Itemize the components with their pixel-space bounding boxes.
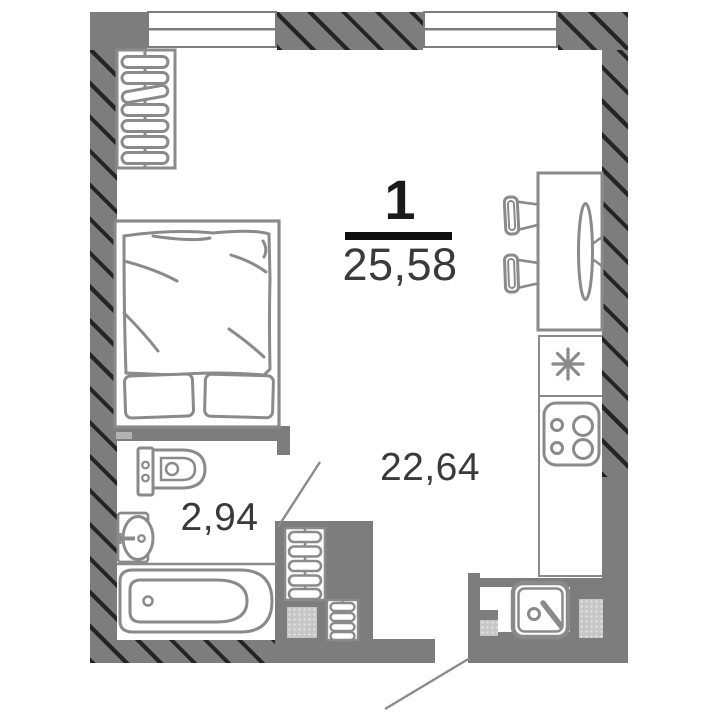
- wall-bottom-left: [90, 640, 278, 663]
- dining-table-icon: [503, 171, 604, 334]
- kitchen-sink-icon: [506, 576, 574, 642]
- total-area-label: 25,58: [330, 241, 470, 289]
- duct-coil-icon: [283, 526, 327, 602]
- main-area-label: 22,64: [370, 446, 490, 490]
- refrigerator-icon: [551, 347, 585, 381]
- wall-top-right: [558, 12, 628, 50]
- chair-icon: [504, 196, 540, 235]
- floor-plan: 1 25,58 22,64 2,94: [0, 0, 720, 720]
- wall-vent-mark: [116, 432, 132, 439]
- bathroom-door-jamb: [277, 440, 290, 455]
- window-right: [423, 11, 558, 48]
- wall-top-middle: [277, 12, 423, 50]
- wall-right-upper: [602, 50, 628, 477]
- duct-coil-icon: [325, 598, 360, 642]
- vent-shaft-icon: [579, 599, 603, 638]
- vent-shaft-icon: [480, 620, 498, 636]
- window-left: [147, 11, 277, 48]
- bed-icon: [113, 219, 281, 429]
- wash-basin-icon: [116, 511, 160, 565]
- bathtub-icon: [117, 560, 279, 636]
- rooms-count-label: 1: [330, 170, 470, 230]
- bathroom-door-swing: [272, 458, 324, 532]
- vent-shaft-icon: [287, 607, 317, 638]
- stove-icon: [541, 400, 601, 468]
- wall-top-left: [90, 12, 147, 50]
- chair-icon: [504, 254, 539, 292]
- radiator-icon: [115, 48, 177, 170]
- entrance-door-line: [380, 650, 475, 714]
- toilet-icon: [136, 446, 208, 498]
- bathroom-area-label: 2,94: [162, 496, 277, 540]
